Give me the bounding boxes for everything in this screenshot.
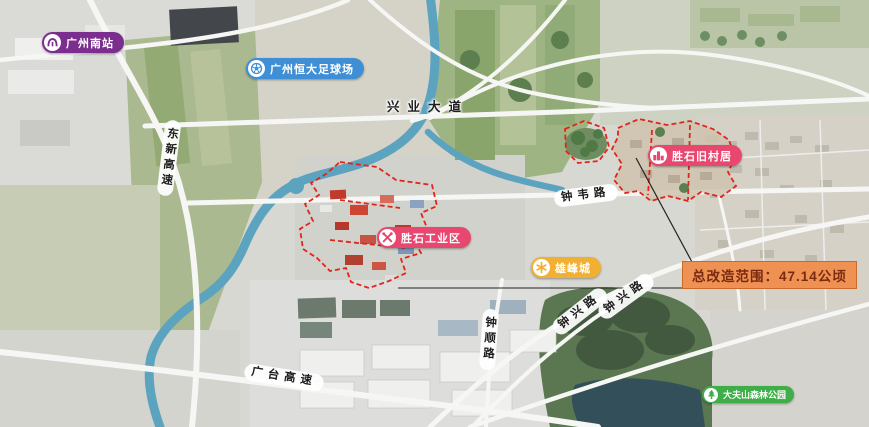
metro-icon: [44, 34, 61, 51]
marker-evergrande-stadium: 广州恒大足球场: [246, 58, 364, 79]
soccer-icon: [248, 60, 265, 77]
marker-shengshi-industrial-zone: 胜石工业区: [377, 227, 471, 248]
marker-label: 胜石工业区: [401, 230, 461, 246]
village-icon: [650, 147, 667, 164]
marker-label: 大夫山森林公园: [723, 388, 786, 401]
marker-guangzhou-south-station: 广州南站: [42, 32, 124, 53]
marker-label: 胜石旧村居: [672, 148, 732, 164]
road-label-xingye-avenue: 兴业大道: [380, 99, 476, 116]
tools-icon: [379, 229, 396, 246]
marker-dafushan-forest-park: 大夫山森林公园: [702, 386, 794, 403]
satellite-planning-map: 兴业大道 东新高速 钟韦路 钟兴路 钟兴路 钟顺路 广台高速 广州南站 广州恒大…: [0, 0, 869, 427]
marker-label: 广州恒大足球场: [270, 61, 354, 77]
marker-label: 广州南站: [66, 35, 114, 51]
marker-shengshi-old-village: 胜石旧村居: [648, 145, 742, 166]
total-redevelopment-scope-callout: 总改造范围：47.14公顷: [682, 261, 857, 289]
marker-label: 雄峰城: [555, 260, 591, 276]
tree-icon: [704, 388, 718, 402]
map-canvas: [0, 0, 869, 427]
marker-xiongfeng-city: 雄峰城: [531, 257, 601, 278]
flower-icon: [533, 259, 550, 276]
